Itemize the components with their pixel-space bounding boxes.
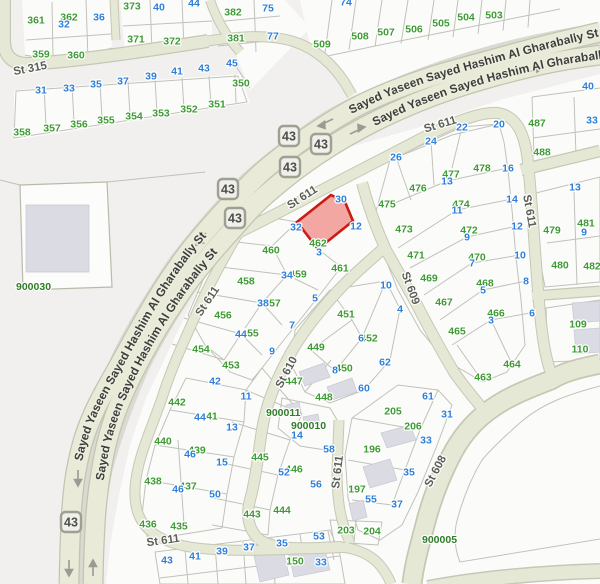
svg-text:10: 10 [514,250,526,262]
svg-text:504: 504 [457,12,475,24]
svg-text:150: 150 [286,556,304,568]
svg-text:61: 61 [422,391,434,403]
svg-text:353: 353 [152,108,170,120]
svg-text:7: 7 [469,258,475,270]
svg-text:31: 31 [441,409,453,421]
svg-text:358: 358 [13,127,31,139]
svg-text:6: 6 [358,333,364,345]
svg-text:8: 8 [523,276,529,288]
svg-text:475: 475 [378,199,396,211]
svg-text:13: 13 [569,182,581,194]
svg-text:32: 32 [58,19,70,31]
svg-text:440: 440 [154,436,172,448]
svg-text:43: 43 [282,129,296,143]
svg-text:371: 371 [127,34,145,46]
svg-text:203: 203 [337,525,355,537]
svg-text:478: 478 [473,163,491,175]
svg-text:482: 482 [583,261,600,273]
svg-text:373: 373 [123,1,141,13]
svg-text:43: 43 [161,555,173,567]
svg-text:42: 42 [209,376,221,388]
svg-text:109: 109 [569,319,587,331]
svg-text:33: 33 [315,557,327,569]
svg-text:9: 9 [464,232,470,244]
svg-text:508: 508 [351,31,369,43]
svg-text:50: 50 [209,489,221,501]
svg-text:20: 20 [493,119,505,131]
svg-text:56: 56 [310,479,322,491]
svg-text:469: 469 [420,273,438,285]
svg-text:44: 44 [235,329,247,341]
svg-text:488: 488 [533,147,551,159]
svg-text:435: 435 [170,521,188,533]
svg-text:37: 37 [391,499,403,511]
svg-text:62: 62 [379,357,391,369]
svg-text:442: 442 [168,397,186,409]
svg-text:75: 75 [262,3,274,15]
svg-text:509: 509 [313,39,331,51]
svg-text:900030: 900030 [16,281,51,293]
svg-text:456: 456 [214,310,232,322]
svg-text:507: 507 [377,27,395,39]
svg-text:9: 9 [269,346,275,358]
svg-text:461: 461 [331,263,349,275]
svg-text:4: 4 [397,304,403,316]
svg-text:43: 43 [64,515,78,529]
svg-text:33: 33 [420,435,432,447]
svg-text:35: 35 [276,538,288,550]
svg-text:60: 60 [358,383,370,395]
svg-text:204: 204 [363,526,381,538]
svg-text:355: 355 [97,115,115,127]
svg-text:351: 351 [208,99,226,111]
svg-text:476: 476 [409,183,427,195]
svg-text:900005: 900005 [422,534,457,546]
svg-text:436: 436 [139,519,157,531]
svg-text:448: 448 [315,392,333,404]
svg-text:11: 11 [240,391,251,403]
svg-text:206: 206 [404,421,422,433]
svg-text:361: 361 [27,15,45,27]
svg-text:15: 15 [216,457,228,469]
svg-text:352: 352 [180,104,198,116]
svg-text:35: 35 [90,79,102,91]
svg-text:45: 45 [226,58,238,70]
svg-text:506: 506 [405,24,423,36]
svg-text:40: 40 [582,81,594,93]
svg-text:77: 77 [267,31,279,43]
svg-text:205: 205 [384,406,402,418]
svg-text:44: 44 [188,0,200,10]
svg-text:9: 9 [581,227,587,239]
svg-text:13: 13 [226,422,238,434]
svg-text:444: 444 [273,505,291,517]
svg-text:58: 58 [323,444,335,456]
svg-text:55: 55 [365,494,377,506]
svg-text:3: 3 [316,247,322,259]
svg-text:458: 458 [237,276,255,288]
svg-text:197: 197 [348,484,366,496]
svg-text:31: 31 [35,85,47,97]
svg-text:43: 43 [198,63,210,75]
svg-text:110: 110 [572,344,589,356]
svg-text:37: 37 [243,542,255,554]
svg-text:6: 6 [529,308,535,320]
svg-text:14: 14 [506,194,518,206]
svg-text:357: 357 [43,123,61,135]
svg-text:372: 372 [163,36,181,48]
svg-text:438: 438 [144,476,162,488]
svg-text:12: 12 [511,221,523,233]
svg-text:53: 53 [313,531,325,543]
svg-text:44: 44 [194,412,206,424]
svg-text:43: 43 [221,182,235,196]
svg-text:43: 43 [314,137,328,151]
svg-text:381: 381 [227,33,245,45]
svg-text:26: 26 [390,152,402,164]
svg-text:43: 43 [228,211,242,225]
svg-text:35: 35 [403,467,415,479]
svg-text:5: 5 [312,293,318,305]
svg-text:8: 8 [332,365,338,377]
svg-text:39: 39 [216,546,228,558]
svg-text:350: 350 [232,78,250,90]
svg-text:451: 451 [337,309,355,321]
svg-text:196: 196 [363,444,381,456]
svg-text:445: 445 [251,452,269,464]
svg-text:467: 467 [435,297,453,309]
svg-text:5: 5 [480,285,486,297]
svg-text:12: 12 [350,221,362,233]
svg-text:359: 359 [32,49,50,61]
svg-text:900010: 900010 [291,420,326,432]
svg-text:449: 449 [307,342,325,354]
svg-text:37: 37 [117,76,129,88]
svg-text:473: 473 [395,224,413,236]
svg-text:43: 43 [283,160,297,174]
svg-text:13: 13 [441,176,453,188]
svg-text:487: 487 [528,118,546,130]
svg-text:74: 74 [340,0,352,9]
svg-text:24: 24 [425,136,437,148]
svg-text:382: 382 [224,7,242,19]
svg-text:464: 464 [503,359,521,371]
svg-text:480: 480 [551,260,569,272]
svg-text:7: 7 [289,320,295,332]
svg-text:360: 360 [67,50,85,62]
svg-text:36: 36 [93,12,105,24]
svg-text:453: 453 [222,360,240,372]
svg-text:52: 52 [278,467,290,479]
svg-text:41: 41 [171,66,183,78]
svg-text:40: 40 [153,2,165,14]
svg-text:505: 505 [432,18,450,30]
svg-text:460: 460 [262,245,280,257]
svg-text:16: 16 [502,163,514,175]
svg-text:38: 38 [257,298,269,310]
svg-text:454: 454 [192,344,210,356]
svg-text:34: 34 [281,270,293,282]
svg-text:30: 30 [335,194,347,206]
svg-text:471: 471 [407,250,425,262]
svg-text:22: 22 [456,122,468,134]
svg-text:900011: 900011 [266,407,301,419]
svg-text:463: 463 [474,372,492,384]
svg-text:443: 443 [243,509,261,521]
svg-text:11: 11 [451,205,462,217]
svg-text:39: 39 [145,71,157,83]
svg-text:479: 479 [543,225,561,237]
svg-text:356: 356 [70,119,88,131]
svg-text:10: 10 [380,280,392,292]
svg-text:33: 33 [63,83,75,95]
svg-text:354: 354 [125,111,143,123]
svg-text:41: 41 [189,551,201,563]
svg-text:33: 33 [586,115,598,127]
svg-text:3: 3 [488,315,494,327]
svg-text:465: 465 [448,326,466,338]
svg-text:46: 46 [172,484,184,496]
svg-text:503: 503 [485,10,503,22]
svg-text:32: 32 [290,222,302,234]
svg-text:46: 46 [184,449,196,461]
